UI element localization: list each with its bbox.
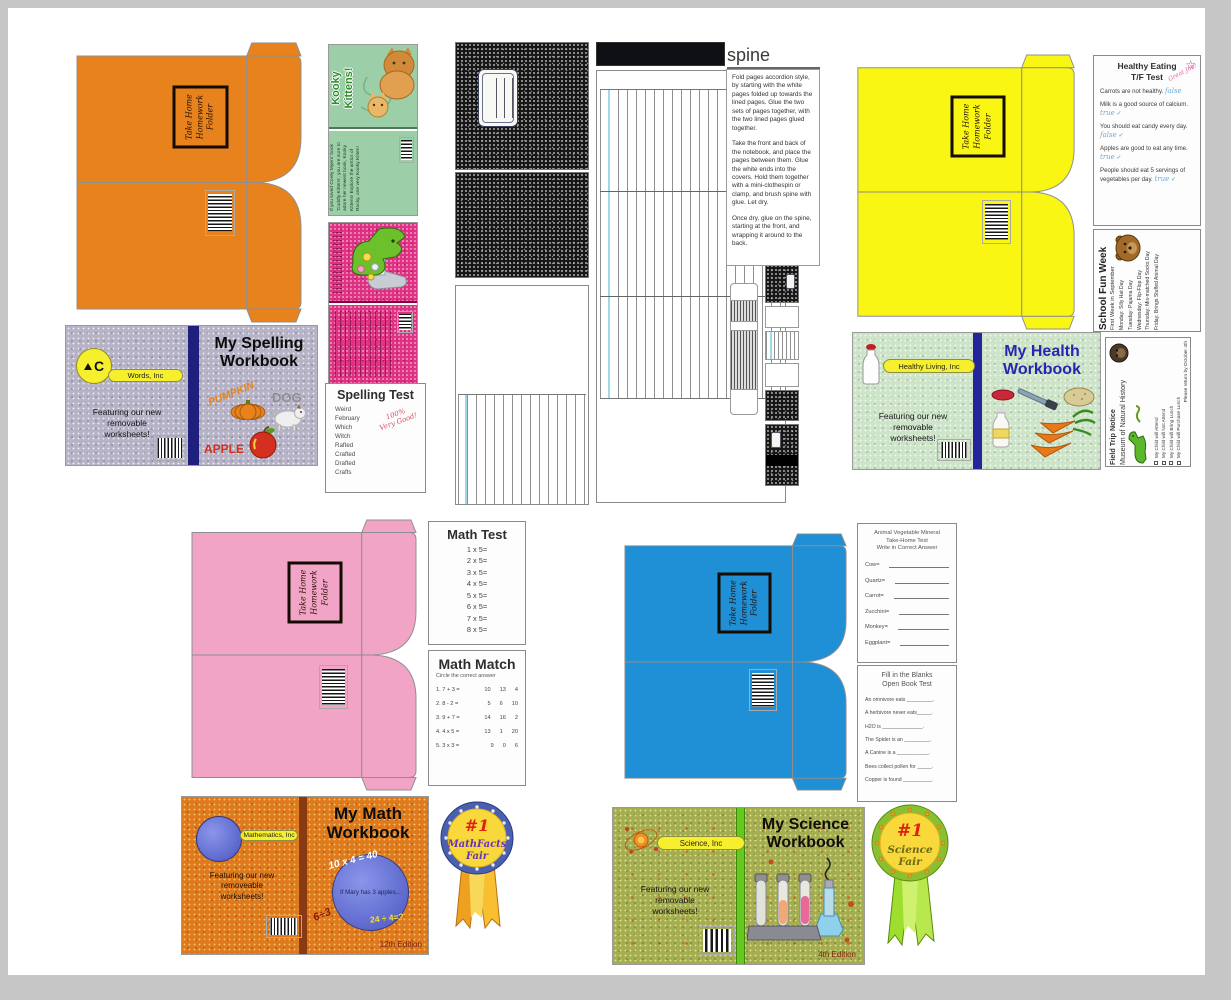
dragon-book-back-cover [329,305,417,383]
kittens-illustration [357,47,415,127]
composition-spine-strip [596,42,725,66]
avm-label: Cow= [865,562,879,568]
workbook-barcode [937,439,971,461]
answer-blank [900,640,949,646]
match-question: 3. 9 + 7 = [436,715,460,721]
instruction-paragraph: Once dry, glue on the spine, starting at… [732,215,814,249]
fun-week-content: School Fun Week First Week in September … [1098,233,1195,330]
kitten-book-barcode [399,137,414,163]
kitten-book-front-cover: Kooky Kittens! [329,45,417,129]
printable-sheet: Take Home Homework Folder Kooky Kittens!… [0,0,1231,1000]
label-rule-line [512,78,513,118]
answer-blank [894,593,949,599]
mini-ruled-page [765,331,799,360]
match-question: 2. 8 - 2 = [436,701,458,707]
composition-name-label [478,69,518,127]
match-options: 5610 [479,701,518,707]
dragon-book-front-cover [329,223,417,303]
answer-text: true [1154,175,1169,183]
margin-line [770,332,772,359]
avm-label: Carrot= [865,593,884,599]
folder-barcode [205,190,235,236]
take-home-folder-pink: Take Home Homework Folder [187,519,420,791]
equation-2: If Mary has 3 apples... [340,889,401,896]
spelling-workbook-title: My Spelling Workbook [201,335,317,371]
option-label: My Child will Attend [1154,417,1159,458]
words-inc-logo: C [76,348,112,384]
folder-label-text: Take Home Homework Folder [962,104,994,150]
logo-letter: C [94,358,104,374]
folder-label-text: Take Home Homework Folder [728,580,760,626]
spelling-workbook-spine [188,326,199,465]
match-option: 2 [515,715,518,721]
math-problem: 2 x 5= [434,555,520,566]
dinosaur-icon [1127,429,1149,465]
mini-label [771,432,781,448]
composition-front-cover [455,42,589,170]
mini-blank-page [765,306,799,328]
check-mark: ✓ [1118,132,1123,139]
fun-week-day: Friday: Brings Stuffed Animal Day [1154,233,1160,330]
kitten-book-blurb: If you loved Corey Myers' book 'Cuddly K… [330,135,388,211]
gorilla-icon [1109,343,1129,363]
match-option: 4 [515,687,518,693]
math-problem: 3 x 5= [434,567,520,578]
mini-blank-page [765,363,799,387]
tf-question: People should eat 5 servings of vegetabl… [1100,167,1194,184]
back-cover-tagline: Featuring our new removeable worksheets! [192,871,292,902]
milk-bottle-logo [861,343,881,385]
check-mark: ✓ [1117,110,1122,117]
instruction-paragraph: Fold pages accordion style, by starting … [732,74,814,133]
spine-band [731,300,757,322]
tf-question: You should eat candy every day. false ✓ [1100,123,1194,140]
instruction-paragraph: Take the front and back of the notebook,… [732,140,814,208]
folder-barcode [749,669,777,711]
math-match-title: Math Match [436,656,518,672]
publisher-pill: Words, Inc [108,369,183,382]
avm-label: Quartz= [865,578,885,584]
match-option: 10 [512,701,518,707]
folder-label: Take Home Homework Folder [951,96,1006,158]
spelling-test-title: Spelling Test [330,388,421,402]
spine-band [731,330,757,390]
match-option: 6 [515,743,518,749]
question-text: Apples are good to eat any time. [1100,145,1188,152]
question-text: You should eat candy every day. [1100,123,1187,130]
dragon-book-barcode [397,311,413,333]
health-foods-illustration [989,387,1099,467]
word-dog: DOG [272,390,302,405]
dragon-shoe-illustration [343,225,415,299]
fill-blank-line: A herbivore never eats_____. [865,710,949,716]
folder-template-shape [72,42,305,323]
take-home-folder-yellow: Take Home Homework Folder [853,54,1078,330]
equation-4: 6÷3 [311,906,332,924]
avm-test-title: Animal Vegetable Mineral Take-Home Test … [865,530,949,553]
folder-barcode [319,665,348,709]
back-cover-tagline: Featuring our new removable worksheets! [623,884,727,917]
word-apple: APPLE [204,442,244,456]
mathfacts-fair-ribbon: #1 MathFacts Fair [436,800,518,932]
fun-week-day: Thursday: Mis-matched Socks Day [1145,233,1151,330]
match-option: 0 [503,743,506,749]
match-row: 5. 3 x 3 =906 [436,743,518,749]
kitten-book: Kooky Kittens! If you loved Corey Myers'… [328,44,418,216]
avm-row: Quartz= [865,578,949,584]
mini-notebook-cover-with-spine [765,424,799,486]
pumpkin-icon [229,400,267,420]
margin-line [608,90,610,398]
match-options: 10134 [475,687,518,693]
fun-week-title: School Fun Week [1098,233,1109,330]
match-options: 906 [482,743,518,749]
match-option: 13 [484,729,490,735]
teddy-bear-icon [1112,233,1142,265]
logo-triangle-icon [84,363,92,370]
kitten-book-back-cover: If you loved Corey Myers' book 'Cuddly K… [329,131,417,215]
checkbox-icon [1154,461,1158,465]
field-trip-content: Field Trip Notice Museum of Natural Hist… [1109,341,1189,465]
answer-blank [895,578,949,584]
label-rule-line [504,78,505,118]
match-option: 20 [512,729,518,735]
spelling-word: Witch [335,433,421,442]
edition-label: 4th Edition [818,950,856,959]
fill-blank-line: The Spider is an _________. [865,737,949,743]
spelling-word: Drafted [335,460,421,469]
match-option: 5 [488,701,491,707]
match-option: 16 [500,715,506,721]
label-inner-frame [482,73,514,123]
math-match-subtitle: Circle the correct answer [436,673,518,679]
take-home-folder-blue: Take Home Homework Folder [620,533,850,791]
math-problem: 7 x 5= [434,613,520,624]
option-label: My Child will Not Attend [1161,409,1166,458]
spelling-word: Crafted [335,451,421,460]
spelling-word: Crafts [335,469,421,478]
fill-blank-line: Bees collect pollen for _____. [865,764,949,770]
publisher-pill: Science, Inc [657,836,745,850]
avm-row: Monkey= [865,624,949,630]
fill-blank-line: A Canine is a ___________. [865,750,949,756]
illegible-script-text [335,311,391,377]
math-match-card: Math Match Circle the correct answer 1. … [428,650,526,786]
math-test-card: Math Test 1 x 5= 2 x 5= 3 x 5= 4 x 5= 5 … [428,521,526,645]
option-row: My Child will Attend [1154,397,1159,465]
spelling-workbook-cover: C Words, Inc Featuring our new removable… [65,325,318,466]
health-workbook-spine [973,333,982,469]
workbook-barcode [153,435,186,461]
math-workbook-cover: Mathematics, Inc Featuring our new remov… [181,796,429,955]
match-question: 1. 7 + 3 = [436,687,460,693]
kitten-book-title: Kooky Kittens! [330,53,364,123]
avm-label: Eggplant= [865,640,890,646]
ribbon-line1: Science [887,844,933,856]
fill-blank-line: Copper is found __________. [865,777,949,783]
match-option: 1 [500,729,503,735]
check-mark: ✓ [1171,176,1176,183]
match-options: 14162 [475,715,518,721]
mini-spine-strip [730,283,758,415]
folder-label: Take Home Homework Folder [288,562,343,624]
math-problem-list: 1 x 5= 2 x 5= 3 x 5= 4 x 5= 5 x 5= 6 x 5… [434,544,520,636]
avm-row: Zucchini= [865,609,949,615]
healthy-eating-test-card: Healthy Eating T/F Test ☆ Great Job! Car… [1093,55,1201,226]
open-book-title: Fill in the Blanks Open Book Test [865,672,949,690]
mini-notebook-cover [765,263,799,303]
workbook-barcode [266,915,302,938]
spelling-word: Rafted [335,442,421,451]
composition-back-cover [455,172,589,278]
field-trip-footer: Please return by October 4th [1184,341,1189,402]
spine-instructions: Fold pages accordion style, by starting … [726,69,820,266]
option-label: My Child will Purchase Lunch [1176,397,1181,458]
lab-equipment-illustration [747,856,859,948]
math-problem: 1 x 5= [434,544,520,555]
folder-label-text: Take Home Homework Folder [299,570,331,616]
ribbon-rank: #1 [465,816,490,835]
folder-label-text: Take Home Homework Folder [184,94,216,140]
answer-text: true [1100,109,1115,117]
label-rule-line [496,78,497,118]
answer-text: false [1165,87,1182,95]
science-workbook-cover: Science, Inc Featuring our new removable… [612,807,865,965]
fill-blank-line: An omnivore eats _________. [865,697,949,703]
spelling-test-card: Spelling Test Weird February Which Witch… [325,383,426,493]
science-fair-ribbon: #1 Science Fair [868,803,952,951]
ribbon-rank: #1 [897,821,923,841]
math-problem: 4 x 5= [434,578,520,589]
mini-spine-band [766,455,798,466]
spine-panel-title: spine [727,45,820,69]
edition-label: 12th Edition [380,940,422,949]
math-test-title: Math Test [434,527,520,542]
atom-logo [621,820,661,860]
mini-notebook-cover [765,390,799,421]
match-question: 5. 3 x 3 = [436,743,459,749]
science-workbook-spine [736,808,745,964]
health-workbook-title: My Health Workbook [984,343,1100,379]
answer-blank [898,624,949,630]
margin-line [465,395,467,504]
match-option: 13 [500,687,506,693]
check-mark: ✓ [1117,154,1122,161]
match-options: 13120 [475,729,518,735]
match-option: 9 [491,743,494,749]
match-question: 4. 4 x 5 = [436,729,459,735]
field-trip-notice-card: Field Trip Notice Museum of Natural Hist… [1105,337,1191,467]
dragon-book [328,222,418,384]
composition-pages-left [455,285,589,505]
tf-question: Milk is a good source of calcium. true ✓ [1100,101,1194,118]
science-workbook-title: My Science Workbook [747,816,864,852]
question-text: Milk is a good source of calcium. [1100,101,1188,108]
checkbox-icon [1169,461,1173,465]
take-home-folder-orange: Take Home Homework Folder [72,42,305,323]
folder-label: Take Home Homework Folder [718,573,772,634]
avm-test-card: Animal Vegetable Mineral Take-Home Test … [857,523,957,663]
math-problem: 6 x 5= [434,601,520,612]
school-fun-week-card: School Fun Week First Week in September … [1093,229,1201,332]
match-row: 3. 9 + 7 =14162 [436,715,518,721]
match-row: 1. 7 + 3 =10134 [436,687,518,693]
workbook-barcode [699,926,735,955]
apple-icon [247,426,281,460]
math-problem: 5 x 5= [434,590,520,601]
lizard-icon [1133,405,1143,423]
folder-barcode [982,200,1011,244]
fill-blank-line: H2O is ______________. [865,724,949,730]
globe-logo [196,816,242,862]
publisher-pill: Mathematics, Inc [240,830,298,841]
option-row: My Child will Purchase Lunch [1176,397,1181,465]
match-option: 6 [500,701,503,707]
option-label: My Child will Bring Lunch [1169,406,1174,458]
folder-template-shape [187,519,420,791]
avm-label: Monkey= [865,624,888,630]
match-option: 10 [484,687,490,693]
checkbox-icon [1162,461,1166,465]
answer-blank [889,562,949,568]
ribbon-line1: MathFacts [447,839,507,850]
ruled-page-area [458,394,586,504]
field-trip-options: My Child will Attend My Child will Not A… [1151,397,1181,465]
equation-3: 24 ÷ 4=? [370,911,405,924]
option-row: My Child will Not Attend [1161,397,1166,465]
avm-label: Zucchini= [865,609,889,615]
match-row: 2. 8 - 2 =5610 [436,701,518,707]
checkbox-icon [1177,461,1181,465]
mini-label [786,274,795,289]
ribbon-line2: Fair [465,851,489,862]
tf-question: Apples are good to eat any time. true ✓ [1100,145,1194,162]
match-row: 4. 4 x 5 =13120 [436,729,518,735]
open-book-test-card: Fill in the Blanks Open Book Test An omn… [857,665,957,802]
folder-label: Take Home Homework Folder [173,86,229,149]
math-workbook-title: My Math Workbook [308,804,428,842]
avm-row: Eggplant= [865,640,949,646]
publisher-pill: Healthy Living, Inc [883,359,975,373]
question-text: Carrots are not healthy. [1100,88,1163,95]
match-option: 14 [484,715,490,721]
math-problem: 8 x 5= [434,624,520,635]
tf-question: Carrots are not healthy. false [1100,87,1194,96]
ribbon-line2: Fair [897,856,923,868]
avm-row: Carrot= [865,593,949,599]
answer-text: false [1100,131,1117,139]
illegible-script-text [333,231,342,293]
answer-text: true [1100,153,1115,161]
option-row: My Child will Bring Lunch [1169,397,1174,465]
avm-row: Cow= [865,562,949,568]
health-workbook-cover: Healthy Living, Inc Featuring our new re… [852,332,1101,470]
answer-blank [899,609,949,615]
